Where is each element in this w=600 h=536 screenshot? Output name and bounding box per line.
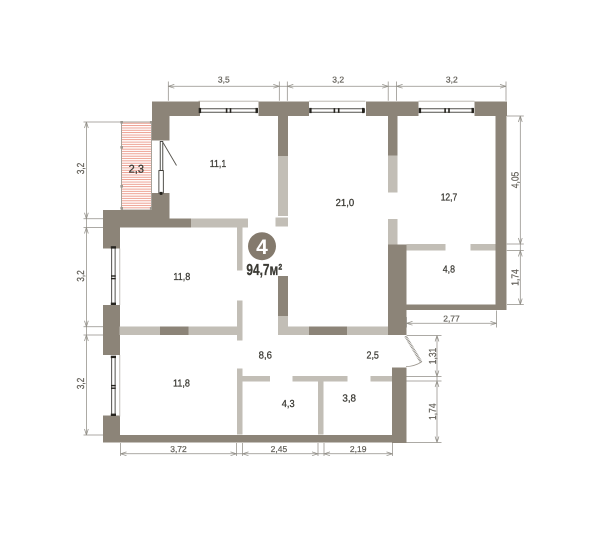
svg-text:12,7: 12,7 xyxy=(441,192,458,203)
svg-text:2,19: 2,19 xyxy=(350,444,367,454)
svg-text:3,72: 3,72 xyxy=(170,444,187,454)
svg-text:4,05: 4,05 xyxy=(511,171,522,188)
svg-text:8,6: 8,6 xyxy=(259,351,273,362)
svg-text:3,2: 3,2 xyxy=(76,162,87,174)
svg-text:3,2: 3,2 xyxy=(76,270,87,282)
svg-text:4: 4 xyxy=(256,236,268,259)
svg-text:1,74: 1,74 xyxy=(428,403,439,420)
svg-text:11,8: 11,8 xyxy=(173,379,190,390)
svg-text:11,1: 11,1 xyxy=(210,159,227,170)
svg-text:2,5: 2,5 xyxy=(367,351,380,362)
svg-text:4,8: 4,8 xyxy=(443,264,455,275)
svg-text:2,3: 2,3 xyxy=(129,163,144,175)
svg-text:3,2: 3,2 xyxy=(76,377,87,389)
svg-text:3,5: 3,5 xyxy=(218,75,230,85)
svg-text:1,31: 1,31 xyxy=(428,347,439,364)
svg-text:11,8: 11,8 xyxy=(173,272,190,283)
svg-text:3,8: 3,8 xyxy=(342,393,356,404)
svg-text:1,74: 1,74 xyxy=(511,269,522,286)
svg-text:3,2: 3,2 xyxy=(446,75,458,85)
svg-text:4,3: 4,3 xyxy=(282,399,295,410)
svg-text:2,45: 2,45 xyxy=(271,444,288,454)
svg-text:94,7м²: 94,7м² xyxy=(246,262,282,279)
svg-text:3,2: 3,2 xyxy=(332,75,344,85)
svg-text:2,77: 2,77 xyxy=(443,313,460,323)
svg-text:21,0: 21,0 xyxy=(336,198,355,209)
